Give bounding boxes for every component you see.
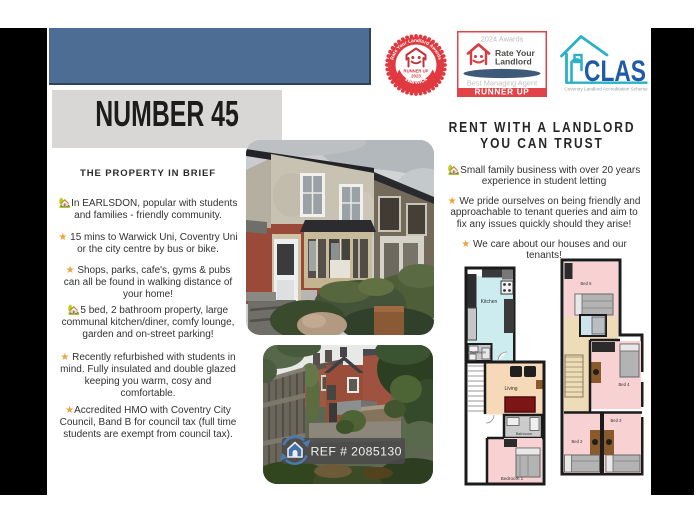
svg-text:Bed 4: Bed 4 — [619, 382, 631, 387]
svg-text:2024 Awards: 2024 Awards — [481, 35, 524, 44]
svg-text:Best Managing Agent: Best Managing Agent — [467, 79, 537, 88]
svg-text:Landlord: Landlord — [495, 57, 532, 67]
svg-text:Coventry Landlord Accreditatio: Coventry Landlord Accreditation Scheme — [564, 87, 648, 92]
svg-text:Bathroom: Bathroom — [470, 351, 486, 355]
svg-text:Bathroom: Bathroom — [516, 432, 532, 436]
svg-text:Kitchen: Kitchen — [481, 299, 498, 305]
svg-text:Bed 5: Bed 5 — [581, 281, 593, 286]
svg-text:RUNNER UP: RUNNER UP — [475, 88, 530, 97]
svg-text:Bed 2: Bed 2 — [572, 439, 584, 444]
svg-text:Living: Living — [504, 386, 517, 392]
svg-text:Bedroom 1: Bedroom 1 — [501, 476, 524, 481]
svg-text:REF # 2085130: REF # 2085130 — [311, 445, 402, 459]
svg-text:2023: 2023 — [411, 73, 421, 78]
svg-text:Bed 3: Bed 3 — [611, 418, 623, 423]
